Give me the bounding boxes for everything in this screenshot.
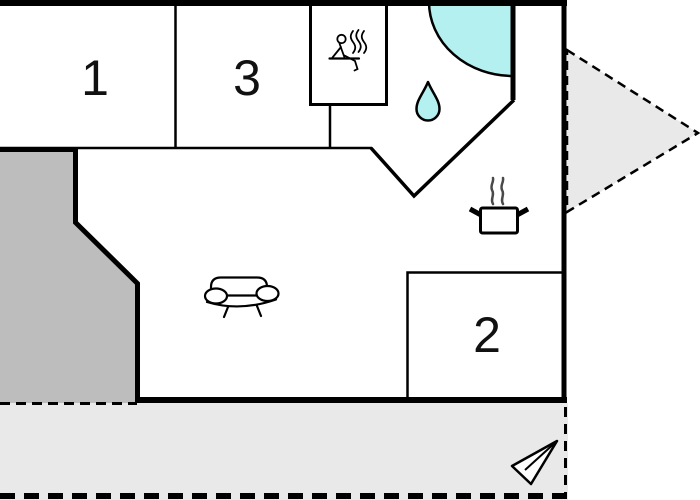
terrace-area: [0, 403, 568, 500]
room-2-label: 2: [473, 307, 501, 363]
room-1-label: 1: [81, 50, 109, 106]
pot-steam-2: [501, 178, 503, 204]
room-3-label: 3: [233, 50, 261, 106]
pot-steam-1: [491, 178, 493, 204]
floor-plan: 1 3 2: [0, 0, 700, 500]
sauna-cabin: [311, 0, 387, 105]
pot-body: [481, 208, 518, 233]
floor-plan-svg: 1 3 2: [0, 0, 700, 500]
